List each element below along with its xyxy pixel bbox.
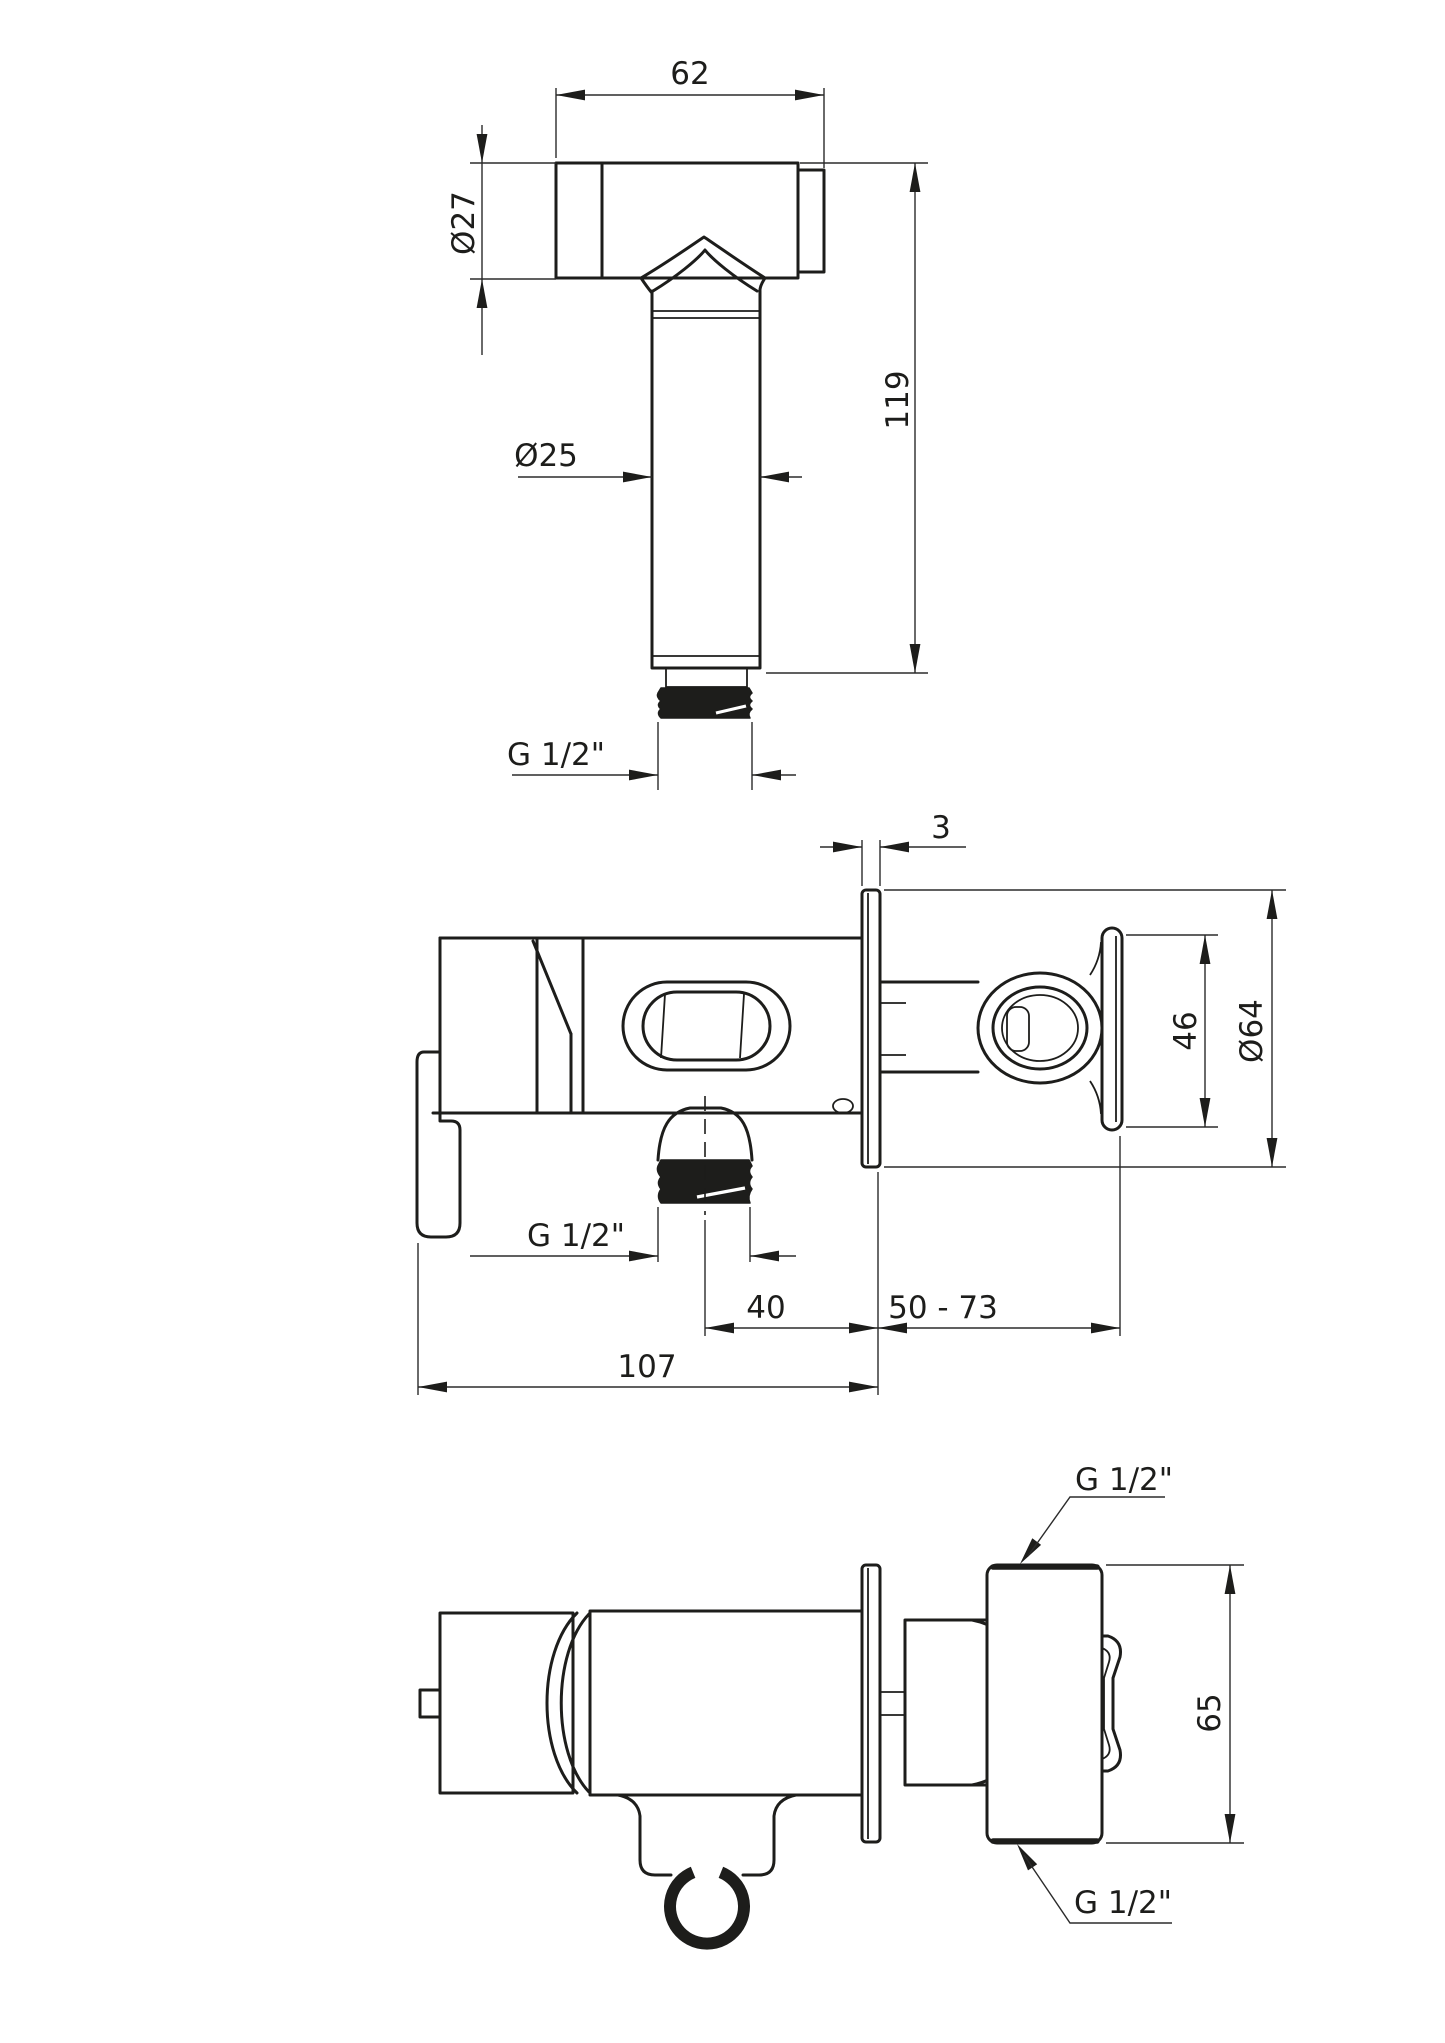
wall-plate-side <box>862 890 880 1167</box>
dim-label-g12-top: G 1/2" <box>1075 1462 1173 1498</box>
lever-block-top <box>440 1613 573 1793</box>
cradle-outer <box>623 982 790 1070</box>
fork-c-ring <box>670 1872 744 1943</box>
view-mixer-side: 3 46 Ø64 G 1/2" <box>417 810 1286 1395</box>
holder-ring-outer <box>978 973 1102 1083</box>
dim-label-50-73: 50 - 73 <box>888 1290 998 1326</box>
shower-head-body <box>556 163 798 278</box>
technical-drawing: 62 Ø27 Ø25 119 <box>0 0 1445 2043</box>
shower-head-right-cap <box>798 170 824 272</box>
dim-plate-diameter: Ø64 <box>884 890 1286 1167</box>
fork-left <box>618 1795 671 1875</box>
leader-inlet-bottom: G 1/2" <box>1017 1844 1172 1923</box>
valve-post-top <box>987 1565 1102 1843</box>
view-hand-shower: 62 Ø27 Ø25 119 <box>446 56 928 790</box>
lever-tip-top <box>420 1690 440 1717</box>
dim-plate-thickness: 3 <box>820 810 966 886</box>
holder-ring-slot <box>1007 1007 1029 1051</box>
dim-label-62: 62 <box>670 56 709 92</box>
drawing-page: 62 Ø27 Ø25 119 <box>0 0 1445 2043</box>
body-screw-hole <box>833 1099 853 1113</box>
valve-block-top <box>905 1620 987 1785</box>
cradle-rib-1 <box>661 994 665 1058</box>
dim-outlet-thread: G 1/2" <box>470 1207 796 1262</box>
dim-label-65: 65 <box>1192 1693 1228 1732</box>
dim-handle-thread: G 1/2" <box>507 722 796 790</box>
dim-head-diameter: Ø27 <box>446 125 556 355</box>
dim-label-g12-bottom: G 1/2" <box>1074 1885 1172 1921</box>
dim-body-depth: 65 <box>1106 1565 1244 1843</box>
handle-thread <box>657 688 752 718</box>
dim-label-g12-outlet: G 1/2" <box>527 1218 625 1254</box>
leader-inlet-top: G 1/2" <box>1020 1462 1173 1564</box>
body-diagonal <box>533 941 571 1034</box>
wall-plate-top <box>862 1565 880 1842</box>
holder-ring-joins <box>1090 942 1101 1114</box>
fork-right <box>743 1795 796 1875</box>
cradle-rib-2 <box>740 994 744 1058</box>
cone-outer <box>641 237 765 278</box>
dim-label-3: 3 <box>931 810 951 846</box>
holder-bracket-bar <box>1102 928 1122 1130</box>
dim-label-107: 107 <box>617 1349 676 1385</box>
view-mixer-top: G 1/2" 65 G 1/2" <box>420 1462 1244 1944</box>
dim-label-g12-shower: G 1/2" <box>507 737 605 773</box>
mixer-body-top <box>590 1611 862 1795</box>
mixer-side-outline <box>417 890 1122 1237</box>
dim-label-d64: Ø64 <box>1234 999 1270 1063</box>
lever-pivot-arc-inner <box>561 1614 589 1792</box>
handle-neck <box>666 668 747 687</box>
handle-outline <box>652 291 760 668</box>
mixer-top-outline <box>420 1565 1121 1944</box>
dim-label-d25: Ø25 <box>514 438 578 474</box>
dim-label-40: 40 <box>746 1290 785 1326</box>
dim-label-46: 46 <box>1168 1011 1204 1050</box>
dim-holder-height: 46 <box>1126 935 1218 1127</box>
dim-label-d27: Ø27 <box>446 191 482 255</box>
dim-shower-length: 119 <box>766 163 928 673</box>
dim-head-width: 62 <box>556 56 824 168</box>
hand-shower-outline <box>556 163 824 718</box>
dim-label-119: 119 <box>880 370 916 429</box>
dim-bottom-chain: 40 50 - 73 107 <box>418 1136 1120 1395</box>
cone-inner <box>653 250 757 291</box>
